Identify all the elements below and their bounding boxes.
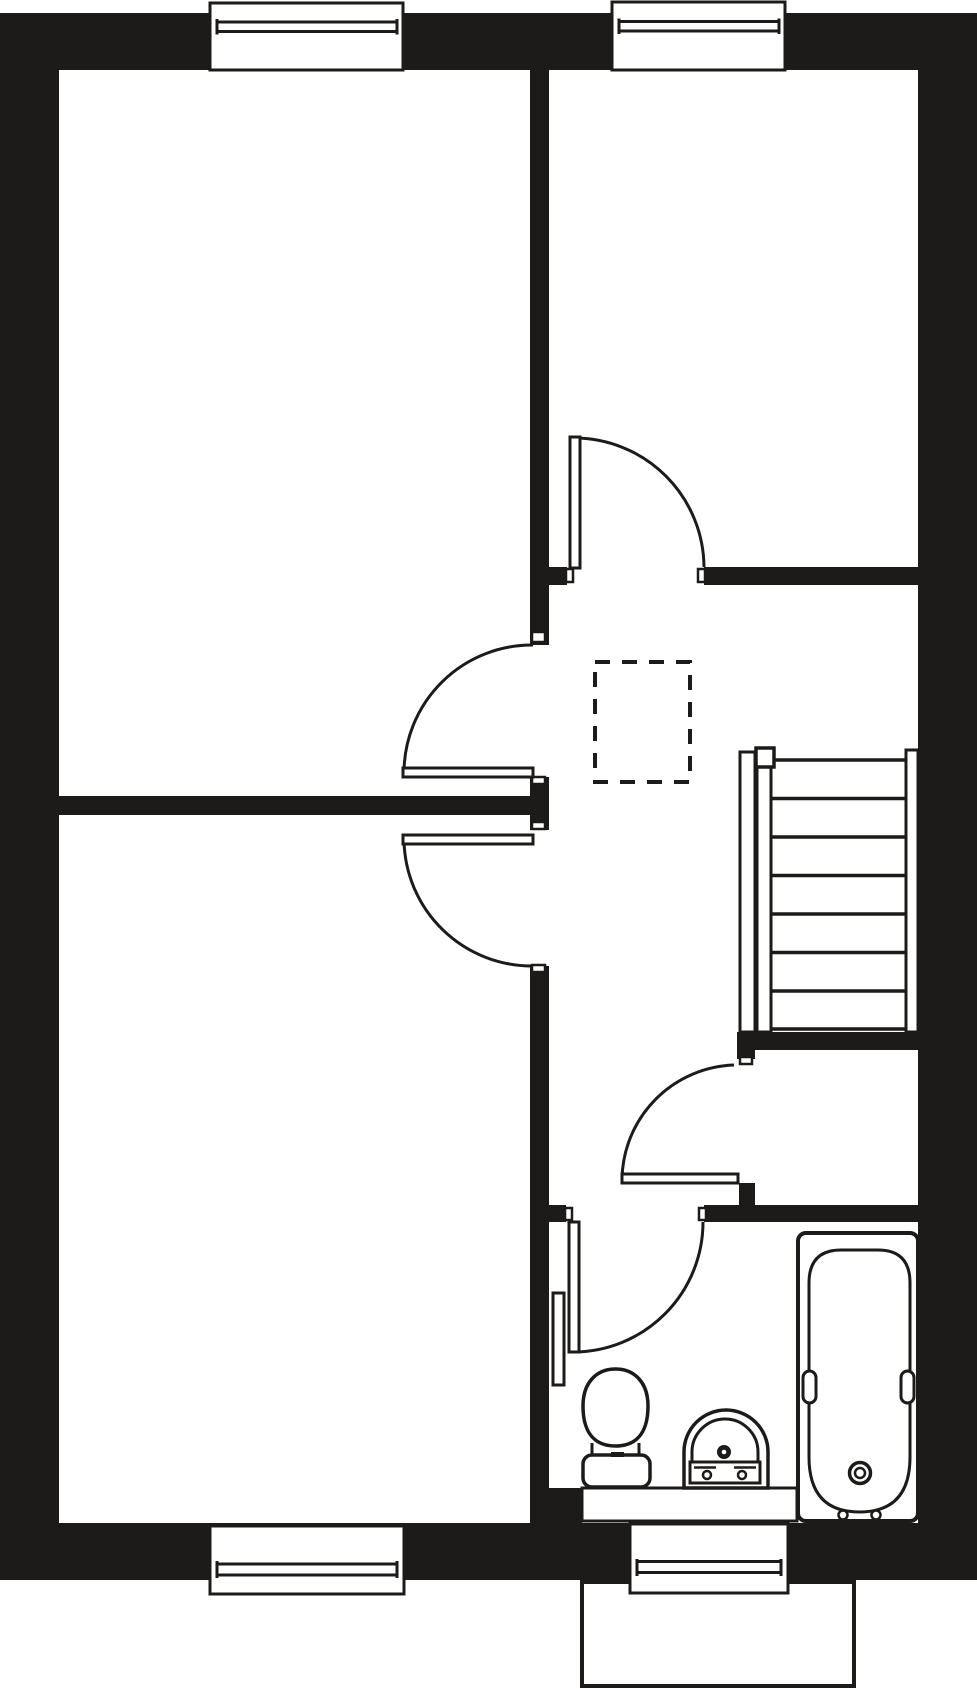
window-bottom-right-frame: [630, 1524, 788, 1593]
basin-ledge: [690, 1462, 760, 1483]
floor-plan-svg: [0, 0, 977, 1689]
door-jamb: [565, 1208, 572, 1220]
door-leaf-bottomleft-room: [403, 835, 533, 844]
top-wall: [0, 13, 977, 70]
door-leaf-store: [622, 1174, 738, 1183]
bathroom-north-stub: [548, 1205, 566, 1222]
door-leaf-bathroom: [569, 1222, 579, 1352]
door-jamb: [532, 965, 545, 972]
topright-room-south-wall: [704, 567, 918, 585]
basin-faucet-dot-center: [722, 1450, 727, 1455]
window-top-right-frame: [612, 2, 785, 70]
left-wall: [0, 13, 59, 1579]
door-jamb: [532, 822, 545, 829]
door-jamb: [699, 1208, 706, 1220]
right-wall: [918, 13, 977, 1579]
store-door-pier: [739, 1183, 755, 1205]
toilet-bowl: [583, 1369, 648, 1446]
window-bottom-left-frame: [210, 1526, 404, 1594]
bathroom-counter: [582, 1488, 797, 1521]
stairs-right-rail: [906, 750, 918, 1032]
bathroom-north-wall: [704, 1205, 918, 1222]
basin-tap-right: [738, 1471, 746, 1479]
radiator: [553, 1293, 564, 1385]
stairs-left-rail-outer: [740, 752, 755, 1032]
bath-drain-outer: [850, 1463, 871, 1484]
toilet-flush-button: [611, 1452, 624, 1457]
left-rooms-divider-wall: [59, 796, 530, 815]
bottom-wall: [0, 1523, 977, 1580]
door-jamb: [740, 1057, 752, 1064]
floor-plan-page: [0, 0, 977, 1689]
understairs-wall: [737, 1032, 918, 1050]
bath-tap-right: [872, 1511, 881, 1520]
bath-grip-left: [803, 1371, 816, 1403]
door-leaf-topleft-room: [403, 768, 533, 777]
bath-tap-left: [839, 1511, 848, 1520]
toilet-cistern: [583, 1455, 650, 1487]
basin-tap-left: [703, 1471, 711, 1479]
window-top-left-frame: [210, 3, 403, 70]
door-jamb: [566, 569, 573, 582]
door-leaf-topright-room: [570, 437, 580, 568]
bath-sw-pier: [530, 1488, 582, 1525]
door-jamb: [532, 632, 545, 642]
door-jamb: [698, 569, 705, 582]
stairs-left-rail-inner: [757, 762, 771, 1032]
topright-room-south-stub: [549, 567, 567, 585]
porch-outline: [582, 1582, 854, 1686]
partition-lower-wall: [530, 966, 549, 1490]
stairs-newel-post: [756, 748, 774, 767]
partition-upper-wall: [530, 70, 549, 645]
bath-grip-right: [901, 1371, 914, 1403]
